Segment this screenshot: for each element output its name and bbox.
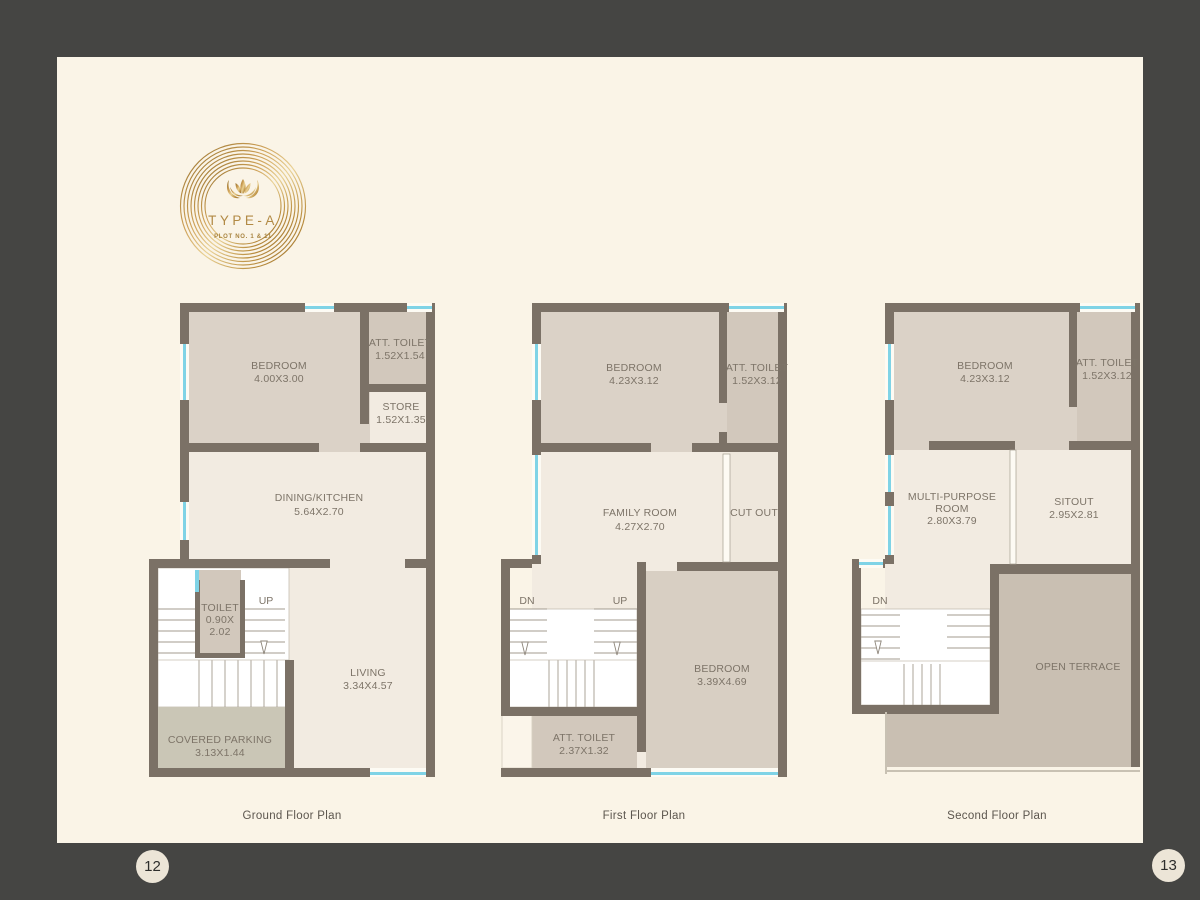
gf-bedroom-dim: 4.00X3.00 [254,373,304,385]
ff-att-toilet1-name: ATT. TOILET [726,362,789,374]
gf-att-toilet-name: ATT. TOILET [369,337,432,349]
second-floor-plan: BEDROOM 4.23X3.12 ATT. TOILET 1.52X3.12 … [847,292,1147,782]
ff-family-name: FAMILY ROOM [603,507,677,519]
page-number-right: 13 [1152,849,1185,882]
gf-parking-dim: 3.13X1.44 [195,747,245,759]
sf-bedroom-name: BEDROOM [957,360,1013,372]
gf-store-name: STORE [383,401,420,413]
type-a-logo: TYPE-A PLOT NO. 1 & 11 [177,141,309,277]
logo-title: TYPE-A [208,213,278,228]
gf-att-toilet-dim: 1.52X1.54 [375,350,425,362]
sf-att-toilet-dim: 1.52X3.12 [1082,370,1132,382]
ff-dn-label: DN [519,595,534,607]
ff-att-toilet1-dim: 1.52X3.12 [732,375,782,387]
second-floor-caption: Second Floor Plan [847,810,1147,822]
ground-floor-caption: Ground Floor Plan [142,810,442,822]
gf-toilet-name: TOILET [201,602,239,614]
sf-mpr-name-2: ROOM [935,503,968,515]
lotus-icon [227,179,259,199]
sf-mpr-dim: 2.80X3.79 [927,515,977,527]
ff-family-dim: 4.27X2.70 [615,521,665,533]
ff-bedroom1-name: BEDROOM [606,362,662,374]
page-number-left: 12 [136,850,169,883]
gf-living-dim: 3.34X4.57 [343,680,393,692]
ff-bedroom2-dim: 3.39X4.69 [697,676,747,688]
sf-att-toilet-name: ATT. TOILET [1076,357,1139,369]
gf-parking-name: COVERED PARKING [168,734,272,746]
ff-bedroom1-dim: 4.23X3.12 [609,375,659,387]
ff-cutout-label: CUT OUT [730,507,778,519]
ground-floor-plan: BEDROOM 4.00X3.00 ATT. TOILET 1.52X1.54 … [142,292,442,782]
ff-bedroom2-name: BEDROOM [694,663,750,675]
first-floor-caption: First Floor Plan [494,810,794,822]
gf-up-label: UP [259,595,274,607]
sf-bedroom-dim: 4.23X3.12 [960,373,1010,385]
logo-subtitle: PLOT NO. 1 & 11 [214,234,272,240]
sf-dn-label: DN [872,595,887,607]
logo-rings [181,144,306,269]
gf-toilet-dim-a: 0.90X [206,614,234,626]
gf-store-dim: 1.52X1.35 [376,414,426,426]
gf-dining-dim: 5.64X2.70 [294,506,344,518]
gf-living-name: LIVING [350,667,386,679]
gf-dining-name: DINING/KITCHEN [275,492,364,504]
brochure-page: TYPE-A PLOT NO. 1 & 11 [57,57,1143,843]
first-floor-plan: BEDROOM 4.23X3.12 ATT. TOILET 1.52X3.12 … [494,292,794,782]
ff-up-label: UP [613,595,628,607]
sf-sitout-dim: 2.95X2.81 [1049,509,1099,521]
sf-terrace-label: OPEN TERRACE [1035,661,1120,673]
ff-att-toilet2-dim: 2.37X1.32 [559,745,609,757]
sf-sitout-name: SITOUT [1054,496,1094,508]
gf-toilet-dim-b: 2.02 [209,626,230,638]
gf-bedroom-name: BEDROOM [251,360,307,372]
sf-mpr-name-1: MULTI-PURPOSE [908,491,996,503]
ff-att-toilet2-name: ATT. TOILET [553,732,616,744]
